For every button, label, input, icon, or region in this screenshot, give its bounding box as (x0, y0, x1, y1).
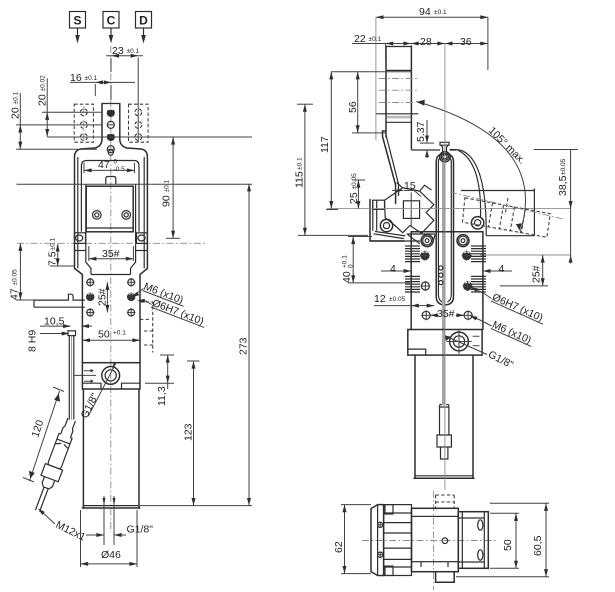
svg-text:47: 47 (98, 159, 110, 171)
svg-text:123: 123 (183, 423, 195, 441)
svg-text:±0.1: ±0.1 (13, 92, 20, 105)
svg-text:±0.05: ±0.05 (560, 158, 567, 175)
svg-text:G1/8": G1/8" (127, 524, 154, 536)
svg-text:47: 47 (9, 288, 21, 300)
svg-text:C: C (107, 14, 116, 28)
svg-text:20: 20 (10, 107, 22, 119)
svg-text:40: 40 (341, 271, 353, 283)
svg-text:±0.1: ±0.1 (369, 36, 382, 43)
svg-text:50: 50 (502, 539, 514, 551)
svg-text:62: 62 (333, 541, 345, 553)
svg-text:±0.02: ±0.02 (40, 75, 47, 92)
svg-text:0: 0 (114, 159, 118, 166)
svg-text:35#: 35# (437, 308, 455, 320)
svg-text:12: 12 (374, 293, 386, 305)
svg-text:50: 50 (98, 329, 110, 341)
svg-text:90: 90 (161, 195, 173, 207)
svg-text:117: 117 (319, 136, 331, 153)
svg-text:94: 94 (419, 6, 431, 18)
svg-text:D: D (139, 14, 148, 28)
svg-text:S: S (73, 14, 81, 28)
svg-text:±0.1: ±0.1 (297, 157, 304, 170)
svg-text:4: 4 (499, 263, 505, 275)
svg-text:±0.1: ±0.1 (85, 75, 98, 82)
svg-text:±0.05: ±0.05 (389, 296, 406, 303)
svg-text:8 H9: 8 H9 (27, 330, 39, 352)
svg-text:60,5: 60,5 (532, 535, 544, 556)
svg-text:25#: 25# (531, 265, 543, 283)
svg-text:4: 4 (390, 263, 396, 275)
svg-text:-0.5: -0.5 (114, 166, 126, 173)
svg-text:38,5: 38,5 (557, 175, 569, 196)
svg-text:28: 28 (420, 36, 432, 48)
svg-text:273: 273 (238, 337, 250, 355)
svg-text:115: 115 (294, 171, 306, 188)
svg-text:±0.1: ±0.1 (127, 48, 140, 55)
svg-text:36: 36 (460, 36, 472, 48)
svg-text:+0.1: +0.1 (113, 330, 126, 337)
svg-text:11,3: 11,3 (156, 386, 168, 406)
svg-text:±0.1: ±0.1 (164, 180, 171, 193)
svg-text:±0.1: ±0.1 (434, 9, 447, 16)
svg-text:±0.05: ±0.05 (12, 269, 19, 286)
svg-text:25#: 25# (97, 288, 109, 306)
svg-text:±0.1: ±0.1 (50, 238, 57, 251)
svg-text:5.37: 5.37 (415, 121, 427, 142)
svg-text:Ø46: Ø46 (101, 549, 121, 561)
